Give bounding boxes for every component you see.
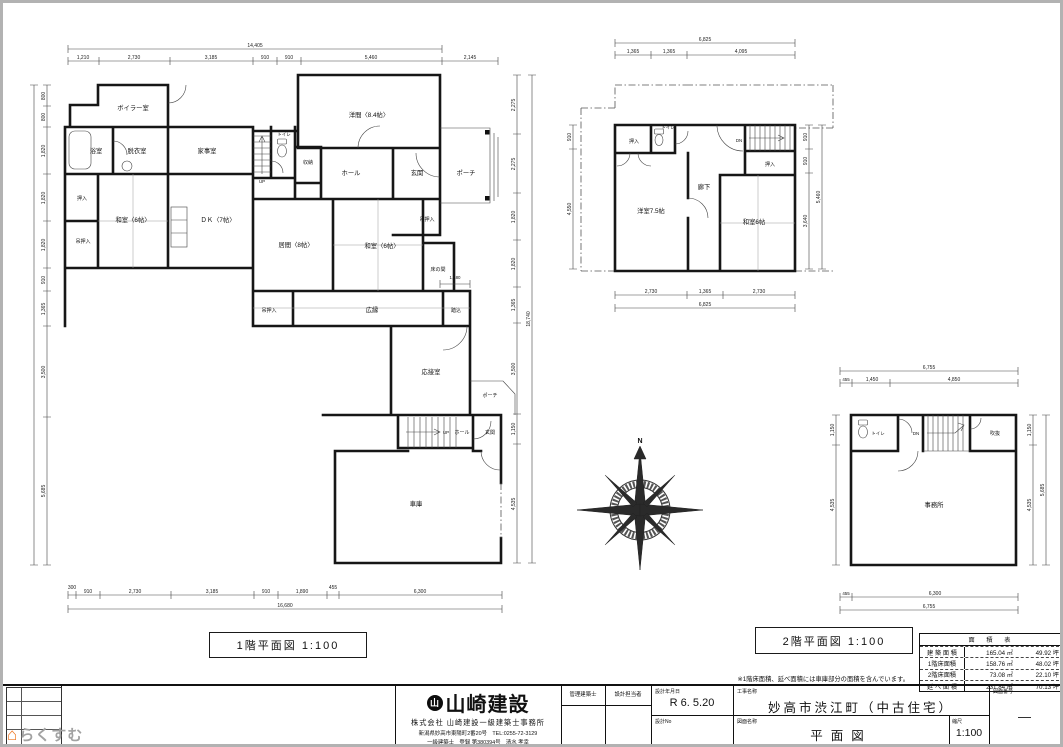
dim: 2,275	[511, 158, 517, 171]
dim: 1,450	[866, 377, 879, 383]
company-name: 株式会社 山崎建設一級建築士事務所	[397, 718, 559, 728]
drawing-sheet: ボイラー室 浴室 脱衣室 家事室 トイレ UP 収納 洋間〈8.4帖〉 ホール …	[0, 0, 1063, 747]
dim: 1,820	[511, 211, 517, 224]
company-logo-mark-icon: 山	[427, 695, 443, 711]
area-tsubo: 49.92 坪	[1017, 648, 1063, 657]
stair-dn-2f: DN	[736, 138, 742, 143]
room-f2-corridor: 廊下	[698, 182, 711, 191]
dim: 5,460	[816, 191, 822, 204]
dim: 6,755	[923, 365, 936, 371]
title-block-top-line	[3, 684, 1060, 686]
dim: 910	[285, 55, 294, 61]
dim: 1,820	[41, 239, 47, 252]
room-fumikomi: 踏込	[451, 307, 461, 314]
room-f2-closet1: 押入	[629, 138, 639, 145]
area-tsubo: 48.02 坪	[1017, 659, 1063, 668]
dim: 3,500	[511, 363, 517, 376]
dim: 16,680	[277, 603, 293, 609]
dim: 4,095	[735, 49, 748, 55]
office-details	[859, 415, 982, 471]
stair-up1: UP	[259, 179, 265, 184]
area-table-title: 面 積 表	[920, 634, 1063, 646]
dim: 1,820	[41, 145, 47, 158]
room-f2-closet2: 押入	[765, 161, 775, 168]
dim: 910	[262, 589, 271, 595]
room-tokonoma: 床の間	[430, 266, 445, 273]
scale-label: 縮尺	[952, 718, 962, 725]
floor2-details	[617, 125, 795, 271]
dim: 2,730	[129, 589, 142, 595]
area-note: ※1階床面積、延べ面積には車庫部分の面積を含んでいます。	[691, 674, 909, 683]
room-toilet1: トイレ	[277, 132, 290, 137]
floor1-dimensions: 14,405 1,210 2,730 3,185 910 910 5,460 2…	[30, 43, 536, 613]
dim: 800	[41, 92, 47, 101]
dim: 910	[567, 133, 573, 142]
dim: 4,850	[948, 377, 961, 383]
dim: 3,185	[205, 55, 218, 61]
room-veranda: 広縁	[366, 305, 379, 314]
dim: 4,535	[511, 498, 517, 511]
room-porch1: ポーチ	[457, 169, 476, 177]
dim: 1,365	[41, 303, 47, 316]
dim: 1,820	[41, 192, 47, 205]
room-of-toilet: トイレ	[871, 431, 884, 436]
floor1-caption: 1階平面図 1:100	[209, 632, 367, 658]
dim: 6,825	[699, 302, 712, 308]
company-block: 山 山崎建設 株式会社 山崎建設一級建築士事務所 新潟県妙高市東陽町2番20号 …	[397, 688, 559, 746]
dim: 1,180	[450, 275, 462, 280]
dim: 910	[84, 589, 93, 595]
room-reception: 応接室	[422, 367, 441, 376]
design-date-label: 設計年月日	[655, 688, 680, 695]
area-row-building: 建 築 面 積 165.04 ㎡ 49.92 坪	[920, 646, 1063, 657]
company-address: 新潟県妙高市東陽町2番20号 TEL:0255-72-3129	[397, 729, 559, 737]
dim: 1,365	[663, 49, 676, 55]
watermark-text: らくすむ	[19, 724, 83, 745]
dim: 14,405	[247, 43, 263, 49]
room-hang1: 吊押入	[75, 238, 90, 245]
stair-up2: UP	[443, 430, 449, 435]
dim: 1,365	[699, 289, 712, 295]
area-sqm: 165.04 ㎡	[965, 648, 1017, 657]
dim: 1,820	[511, 258, 517, 271]
dim: 6,755	[923, 604, 936, 610]
dim: 910	[261, 55, 270, 61]
dim: 5,685	[1040, 484, 1046, 497]
room-garage: 車庫	[410, 499, 423, 508]
dim: 1,150	[830, 424, 836, 437]
room-porch2: ポーチ	[482, 392, 497, 399]
area-label: 1階床面積	[920, 658, 965, 668]
dim: 910	[803, 157, 809, 166]
design-staff-label: 設計担当者	[605, 690, 651, 698]
area-row-floor2: 2階床面積 73.08 ㎡ 22.10 坪	[920, 669, 1063, 680]
dim: 300	[68, 585, 77, 591]
rakusumu-watermark: ⌂ らくすむ	[7, 724, 83, 745]
dim: 800	[41, 113, 47, 122]
dim: 455	[842, 591, 850, 596]
room-bath: 浴室	[90, 146, 103, 155]
office-walls	[851, 415, 1016, 565]
sheet-number-label: 図面番号	[993, 688, 1013, 695]
dim: 2,275	[511, 99, 517, 112]
project-name-value: 妙高市渋江町（中古住宅）	[733, 697, 989, 716]
dim: 1,365	[627, 49, 640, 55]
room-hang2: 吊押入	[419, 216, 434, 223]
drawing-name-value: 平面図	[733, 725, 949, 744]
project-name-label: 工事名称	[737, 688, 757, 695]
stair-dn-office: DN	[913, 431, 919, 436]
scale-value: 1:100	[949, 727, 989, 739]
sheet-number-value: —	[989, 709, 1060, 724]
room-of-office: 事務所	[925, 500, 945, 509]
dim: 6,825	[699, 37, 712, 43]
room-closet: 押入	[77, 195, 87, 202]
room-tatami-m: 和室〈6帖〉	[365, 241, 400, 250]
dim: 2,730	[128, 55, 141, 61]
dim: 5,460	[365, 55, 378, 61]
dim: 1,150	[511, 423, 517, 436]
dim: 910	[803, 133, 809, 142]
revision-row	[7, 701, 61, 715]
dim: 1,150	[1027, 424, 1033, 437]
office-room-labels: トイレ DN 吹抜 事務所	[871, 430, 1000, 509]
house-icon: ⌂	[7, 726, 17, 743]
room-hall1: ホール	[342, 169, 361, 177]
compass-rose: N	[577, 438, 703, 570]
room-f2-western: 洋室7.5帖	[637, 206, 665, 215]
design-no-label: 設計No	[655, 718, 671, 725]
area-tsubo: 70.13 坪	[1017, 682, 1063, 691]
room-entry1: 玄関	[411, 168, 424, 177]
dim: 4,535	[1027, 499, 1033, 512]
area-label: 建 築 面 積	[920, 647, 965, 657]
dim: 4,535	[830, 499, 836, 512]
dim: 6,300	[929, 591, 942, 597]
manager-architect-label: 管理建築士	[561, 690, 605, 698]
room-dk: ＤＫ〈7帖〉	[201, 215, 236, 224]
room-hang3: 吊押入	[261, 307, 276, 314]
floor1-details	[69, 85, 515, 470]
dim: 3,185	[206, 589, 219, 595]
room-entry2: 玄関	[485, 429, 495, 436]
room-f2-tatami: 和室6帖	[743, 217, 766, 226]
dim: 1,210	[77, 55, 90, 61]
dim: 1,890	[296, 589, 309, 595]
dim: 455	[329, 585, 338, 591]
area-row-floor1: 1階床面積 158.76 ㎡ 48.02 坪	[920, 657, 1063, 668]
dim: 455	[842, 377, 850, 382]
room-dressing: 脱衣室	[128, 146, 147, 155]
area-tsubo: 22.10 坪	[1017, 670, 1063, 679]
dim: 2,730	[753, 289, 766, 295]
design-date-value: R 6. 5.20	[651, 697, 733, 709]
dim: 2,145	[464, 55, 477, 61]
dim: 5,685	[41, 485, 47, 498]
room-living: 居間〈8帖〉	[279, 240, 314, 249]
dim: 3,640	[803, 215, 809, 228]
area-label: 2階床面積	[920, 670, 965, 680]
compass-north-label: N	[637, 438, 642, 445]
area-label: 延 べ 面 積	[920, 681, 965, 691]
dim: 910	[41, 276, 47, 285]
company-logo-text: 山崎建設	[446, 688, 530, 717]
room-f2-toilet: トイレ	[661, 125, 674, 130]
dim: 18,740	[526, 311, 532, 327]
floor2-caption: 2階平面図 1:100	[755, 627, 913, 654]
dim: 1,365	[511, 299, 517, 312]
room-boiler: ボイラー室	[117, 103, 148, 112]
dim: 6,300	[414, 589, 427, 595]
company-logo: 山 山崎建設	[397, 688, 559, 717]
dim: 3,500	[41, 366, 47, 379]
company-license: 一級建築士 登録 第380394号 清水 孝幸	[397, 738, 559, 746]
divider	[561, 705, 651, 706]
area-sqm: 158.76 ㎡	[965, 659, 1017, 668]
room-tatami-w: 和室〈6帖〉	[116, 215, 151, 224]
room-hall2: ホール	[454, 430, 469, 436]
drawing-name-label: 図面名称	[737, 718, 757, 725]
revision-row	[7, 688, 61, 701]
floor2-walls	[581, 85, 833, 271]
dim: 2,730	[645, 289, 658, 295]
room-utility: 家事室	[198, 146, 217, 155]
room-of-void: 吹抜	[990, 430, 1000, 437]
dim: 4,550	[567, 203, 573, 216]
room-western1f: 洋間〈8.4帖〉	[349, 110, 389, 119]
room-storage: 収納	[303, 159, 313, 166]
area-sqm: 73.08 ㎡	[965, 670, 1017, 679]
divider	[395, 686, 396, 744]
